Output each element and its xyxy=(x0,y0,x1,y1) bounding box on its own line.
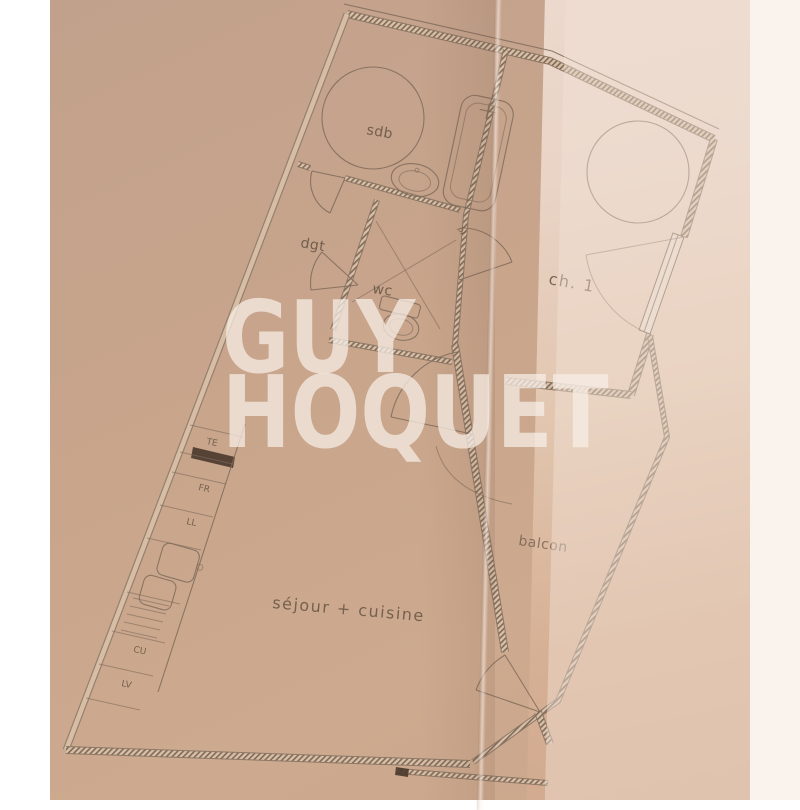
paper-sheet xyxy=(50,0,750,800)
paper-fold-right-page xyxy=(50,0,750,800)
floor-plan-photo: sdb dgt wc pl ch. 1 séjour + cuisine bal… xyxy=(0,0,800,800)
